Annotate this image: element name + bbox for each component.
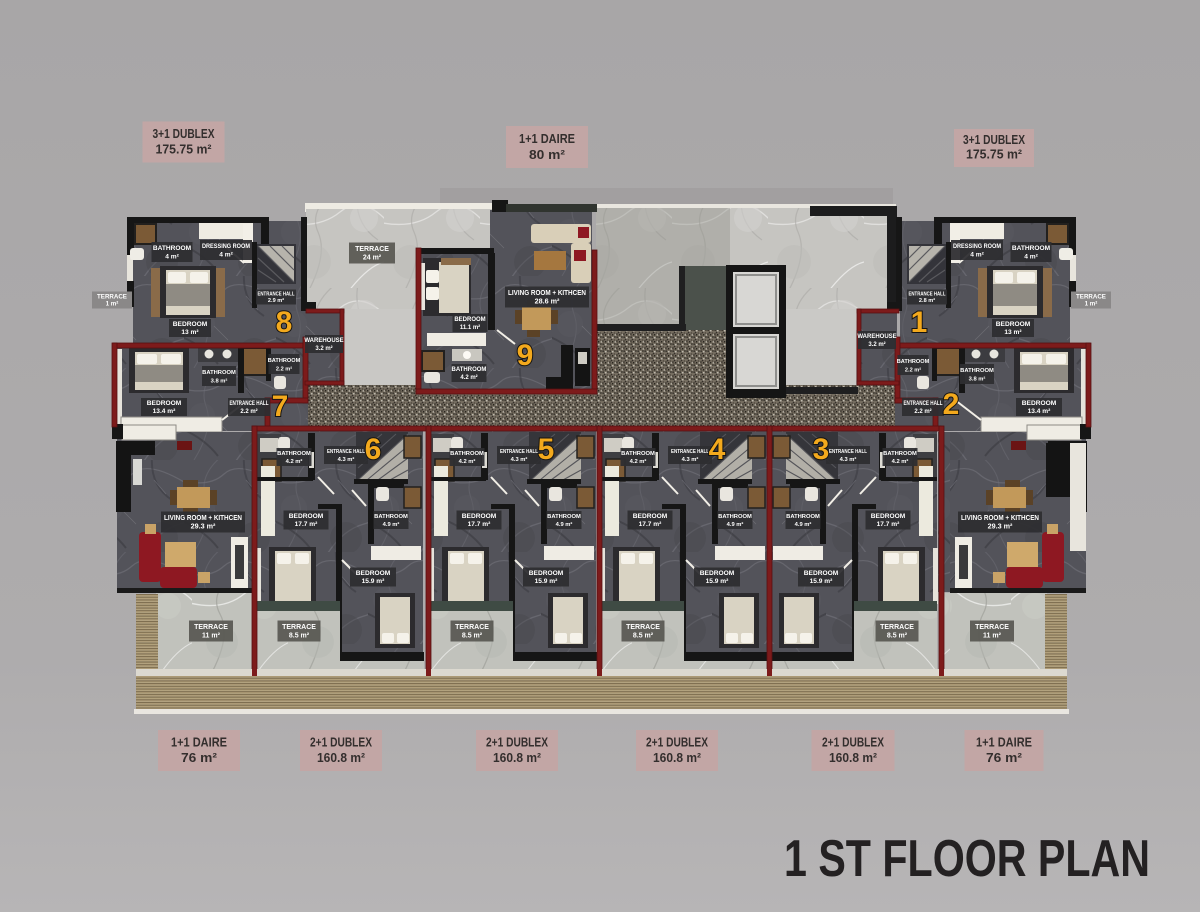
svg-text:BEDROOM: BEDROOM bbox=[804, 570, 839, 577]
svg-text:2.2 m²: 2.2 m² bbox=[905, 366, 921, 373]
svg-text:11 m²: 11 m² bbox=[202, 633, 221, 640]
svg-text:4.3 m²: 4.3 m² bbox=[682, 456, 699, 463]
svg-text:8: 8 bbox=[276, 306, 293, 339]
svg-text:BEDROOM: BEDROOM bbox=[529, 570, 564, 577]
svg-text:2+1 DUBLEX: 2+1 DUBLEX bbox=[310, 734, 372, 749]
svg-text:BATHROOM: BATHROOM bbox=[786, 514, 820, 520]
svg-text:4 m²: 4 m² bbox=[970, 251, 984, 258]
svg-text:29.3 m²: 29.3 m² bbox=[191, 522, 216, 531]
svg-text:BATHROOM: BATHROOM bbox=[883, 451, 917, 457]
svg-text:2.2 m²: 2.2 m² bbox=[914, 408, 931, 415]
svg-text:15.9 m²: 15.9 m² bbox=[706, 578, 730, 585]
svg-text:29.3 m²: 29.3 m² bbox=[988, 522, 1013, 531]
svg-text:ENTRANCE HALL: ENTRANCE HALL bbox=[327, 449, 365, 455]
svg-text:15.9 m²: 15.9 m² bbox=[535, 578, 559, 585]
svg-text:TERRACE: TERRACE bbox=[1076, 293, 1106, 300]
svg-text:2: 2 bbox=[943, 388, 960, 421]
svg-text:7: 7 bbox=[272, 390, 289, 423]
svg-text:15.9 m²: 15.9 m² bbox=[810, 578, 834, 585]
svg-text:ENTRANCE HALL: ENTRANCE HALL bbox=[258, 292, 295, 298]
svg-text:175.75 m²: 175.75 m² bbox=[966, 147, 1023, 162]
svg-text:BATHROOM: BATHROOM bbox=[153, 245, 192, 252]
svg-text:4.3 m²: 4.3 m² bbox=[338, 456, 355, 463]
svg-text:BATHROOM: BATHROOM bbox=[621, 451, 655, 457]
svg-text:ENTRANCE HALL: ENTRANCE HALL bbox=[500, 449, 538, 455]
svg-text:17.7 m²: 17.7 m² bbox=[468, 521, 492, 528]
svg-text:2.2 m²: 2.2 m² bbox=[276, 365, 292, 372]
svg-text:9: 9 bbox=[517, 339, 534, 372]
svg-text:4.2 m²: 4.2 m² bbox=[286, 458, 303, 465]
svg-text:2+1 DUBLEX: 2+1 DUBLEX bbox=[486, 734, 548, 749]
svg-text:175.75 m²: 175.75 m² bbox=[156, 142, 213, 157]
svg-text:TERRACE: TERRACE bbox=[626, 624, 660, 631]
svg-text:1 m²: 1 m² bbox=[1085, 300, 1098, 307]
svg-text:BEDROOM: BEDROOM bbox=[454, 317, 485, 323]
svg-text:17.7 m²: 17.7 m² bbox=[639, 521, 663, 528]
svg-text:BEDROOM: BEDROOM bbox=[462, 513, 497, 520]
svg-text:TERRACE: TERRACE bbox=[455, 624, 489, 631]
svg-text:4.2 m²: 4.2 m² bbox=[460, 374, 477, 381]
svg-text:3.8 m²: 3.8 m² bbox=[969, 375, 986, 382]
svg-text:TERRACE: TERRACE bbox=[355, 246, 389, 253]
svg-text:2+1 DUBLEX: 2+1 DUBLEX bbox=[822, 734, 884, 749]
svg-text:2.8 m²: 2.8 m² bbox=[919, 297, 935, 304]
svg-text:80 m²: 80 m² bbox=[529, 147, 566, 162]
svg-text:BATHROOM: BATHROOM bbox=[268, 358, 301, 364]
svg-text:BEDROOM: BEDROOM bbox=[356, 570, 391, 577]
svg-text:ENTRANCE HALL: ENTRANCE HALL bbox=[904, 401, 943, 407]
svg-text:1 m²: 1 m² bbox=[106, 300, 119, 307]
svg-text:TERRACE: TERRACE bbox=[282, 624, 316, 631]
svg-text:4 m²: 4 m² bbox=[219, 251, 233, 258]
svg-text:WAREHOUSE: WAREHOUSE bbox=[304, 338, 343, 344]
svg-text:BEDROOM: BEDROOM bbox=[700, 570, 735, 577]
svg-text:TERRACE: TERRACE bbox=[194, 624, 228, 631]
svg-text:4: 4 bbox=[709, 433, 726, 466]
svg-text:13.4 m²: 13.4 m² bbox=[153, 408, 177, 415]
svg-text:8.5 m²: 8.5 m² bbox=[289, 633, 310, 640]
svg-text:BATHROOM: BATHROOM bbox=[202, 370, 236, 376]
svg-text:13 m²: 13 m² bbox=[181, 329, 199, 336]
svg-text:17.7 m²: 17.7 m² bbox=[877, 521, 901, 528]
svg-text:3+1 DUBLEX: 3+1 DUBLEX bbox=[963, 132, 1025, 147]
svg-text:2.9 m²: 2.9 m² bbox=[268, 297, 284, 304]
svg-text:160.8 m²: 160.8 m² bbox=[653, 750, 702, 765]
svg-text:1+1 DAIRE: 1+1 DAIRE bbox=[171, 734, 227, 749]
svg-text:ENTRANCE HALL: ENTRANCE HALL bbox=[230, 401, 269, 407]
svg-text:13.4 m²: 13.4 m² bbox=[1028, 408, 1052, 415]
svg-text:160.8 m²: 160.8 m² bbox=[493, 750, 542, 765]
svg-text:ENTRANCE HALL: ENTRANCE HALL bbox=[909, 292, 946, 298]
svg-text:4.9 m²: 4.9 m² bbox=[727, 521, 744, 528]
svg-text:BEDROOM: BEDROOM bbox=[289, 513, 324, 520]
svg-text:17.7 m²: 17.7 m² bbox=[295, 521, 319, 528]
svg-text:4.2 m²: 4.2 m² bbox=[459, 458, 476, 465]
svg-text:15.9 m²: 15.9 m² bbox=[362, 578, 386, 585]
svg-text:4.9 m²: 4.9 m² bbox=[556, 521, 573, 528]
svg-text:3+1 DUBLEX: 3+1 DUBLEX bbox=[153, 126, 215, 141]
svg-text:4.3 m²: 4.3 m² bbox=[511, 456, 528, 463]
svg-text:8.5 m²: 8.5 m² bbox=[633, 633, 654, 640]
svg-text:11.1 m²: 11.1 m² bbox=[460, 324, 480, 331]
svg-text:BATHROOM: BATHROOM bbox=[450, 451, 484, 457]
svg-text:BATHROOM: BATHROOM bbox=[374, 514, 408, 520]
svg-text:TERRACE: TERRACE bbox=[975, 624, 1009, 631]
svg-text:TERRACE: TERRACE bbox=[880, 624, 914, 631]
svg-text:160.8 m²: 160.8 m² bbox=[317, 750, 366, 765]
svg-text:BATHROOM: BATHROOM bbox=[1012, 245, 1051, 252]
svg-text:8.5 m²: 8.5 m² bbox=[462, 633, 483, 640]
svg-text:1 ST FLOOR PLAN: 1 ST FLOOR PLAN bbox=[784, 830, 1150, 888]
svg-text:3.8 m²: 3.8 m² bbox=[211, 377, 228, 384]
svg-text:160.8 m²: 160.8 m² bbox=[829, 750, 878, 765]
svg-text:ENTRANCE HALL: ENTRANCE HALL bbox=[671, 449, 709, 455]
svg-text:5: 5 bbox=[538, 433, 555, 466]
svg-text:11 m²: 11 m² bbox=[983, 633, 1002, 640]
svg-text:DRESSING ROOM: DRESSING ROOM bbox=[202, 243, 250, 250]
svg-text:76 m²: 76 m² bbox=[181, 750, 218, 765]
svg-text:LIVING ROOM + KITHCEN: LIVING ROOM + KITHCEN bbox=[508, 288, 586, 297]
svg-text:BEDROOM: BEDROOM bbox=[633, 513, 668, 520]
svg-text:DRESSING ROOM: DRESSING ROOM bbox=[953, 243, 1001, 250]
svg-text:WAREHOUSE: WAREHOUSE bbox=[857, 334, 896, 340]
svg-text:BEDROOM: BEDROOM bbox=[173, 321, 208, 328]
svg-text:4.2 m²: 4.2 m² bbox=[630, 458, 647, 465]
svg-text:3.2 m²: 3.2 m² bbox=[868, 341, 885, 348]
svg-text:BATHROOM: BATHROOM bbox=[960, 368, 994, 374]
svg-text:BEDROOM: BEDROOM bbox=[871, 513, 906, 520]
svg-text:24 m²: 24 m² bbox=[363, 255, 382, 262]
svg-text:76 m²: 76 m² bbox=[986, 750, 1023, 765]
svg-text:4.9 m²: 4.9 m² bbox=[383, 521, 400, 528]
svg-text:2+1 DUBLEX: 2+1 DUBLEX bbox=[646, 734, 708, 749]
svg-text:4 m²: 4 m² bbox=[1024, 253, 1038, 260]
svg-text:8.5 m²: 8.5 m² bbox=[887, 633, 908, 640]
svg-text:ENTRANCE HALL: ENTRANCE HALL bbox=[829, 449, 867, 455]
svg-text:6: 6 bbox=[365, 433, 382, 466]
svg-text:1: 1 bbox=[911, 306, 928, 339]
svg-text:LIVING ROOM + KITHCEN: LIVING ROOM + KITHCEN bbox=[961, 513, 1039, 522]
svg-text:2.2 m²: 2.2 m² bbox=[240, 408, 257, 415]
svg-text:BATHROOM: BATHROOM bbox=[897, 359, 930, 365]
svg-text:LIVING ROOM + KITHCEN: LIVING ROOM + KITHCEN bbox=[164, 513, 242, 522]
svg-text:BEDROOM: BEDROOM bbox=[1022, 400, 1057, 407]
svg-text:4.9 m²: 4.9 m² bbox=[795, 521, 812, 528]
svg-text:4 m²: 4 m² bbox=[165, 253, 179, 260]
svg-text:4.2 m²: 4.2 m² bbox=[892, 458, 909, 465]
svg-text:BATHROOM: BATHROOM bbox=[718, 514, 752, 520]
svg-text:BATHROOM: BATHROOM bbox=[452, 367, 487, 373]
svg-text:28.6 m²: 28.6 m² bbox=[535, 297, 560, 306]
svg-text:BATHROOM: BATHROOM bbox=[547, 514, 581, 520]
svg-text:BEDROOM: BEDROOM bbox=[147, 400, 182, 407]
svg-text:BATHROOM: BATHROOM bbox=[277, 451, 311, 457]
svg-text:13 m²: 13 m² bbox=[1004, 329, 1022, 336]
svg-text:BEDROOM: BEDROOM bbox=[996, 321, 1031, 328]
svg-text:TERRACE: TERRACE bbox=[97, 293, 127, 300]
svg-text:3: 3 bbox=[813, 433, 830, 466]
svg-text:1+1 DAIRE: 1+1 DAIRE bbox=[519, 131, 575, 146]
svg-text:3.2 m²: 3.2 m² bbox=[315, 345, 332, 352]
svg-text:4.3 m²: 4.3 m² bbox=[840, 456, 857, 463]
svg-text:1+1 DAIRE: 1+1 DAIRE bbox=[976, 734, 1032, 749]
